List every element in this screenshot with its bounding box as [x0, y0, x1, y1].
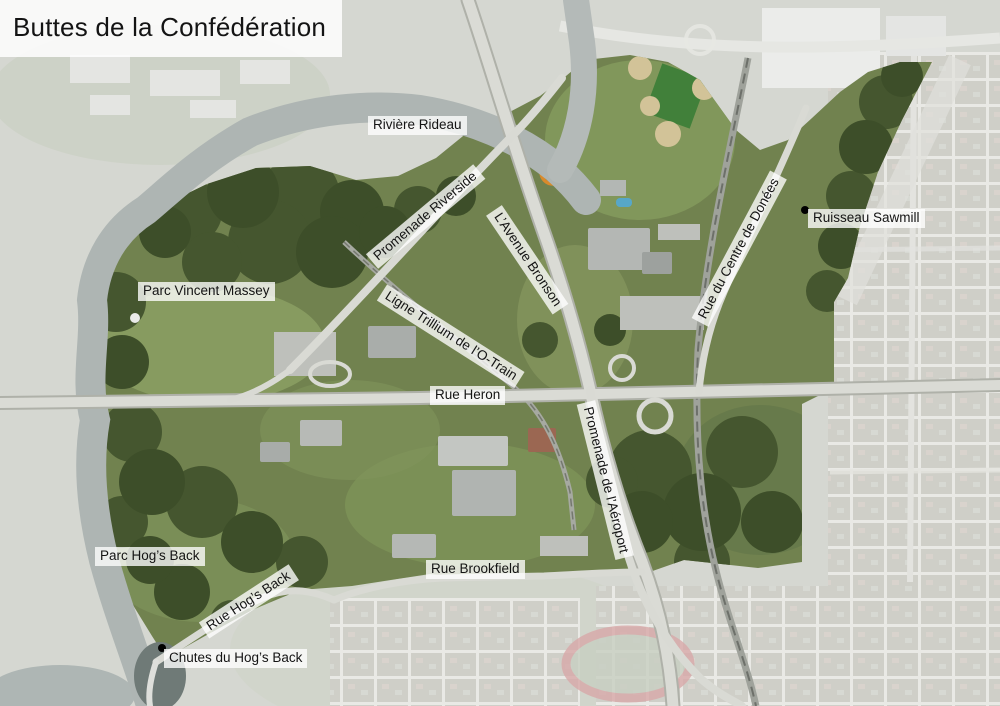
label-parc-hogs-back: Parc Hog’s Back: [95, 547, 205, 566]
label-riviere-rideau: Rivière Rideau: [368, 116, 467, 135]
label-chutes-du-hogs-back: Chutes du Hog’s Back: [164, 649, 307, 668]
aerial-imagery-canvas: [0, 0, 1000, 706]
label-parc-vincent-massey: Parc Vincent Massey: [138, 282, 275, 301]
label-ruisseau-sawmill: Ruisseau Sawmill: [808, 209, 925, 228]
aerial-map: Buttes de la Confédération Rivière Ridea…: [0, 0, 1000, 706]
label-rue-brookfield: Rue Brookfield: [426, 560, 525, 579]
label-rue-heron: Rue Heron: [430, 386, 505, 405]
map-title: Buttes de la Confédération: [0, 0, 342, 57]
